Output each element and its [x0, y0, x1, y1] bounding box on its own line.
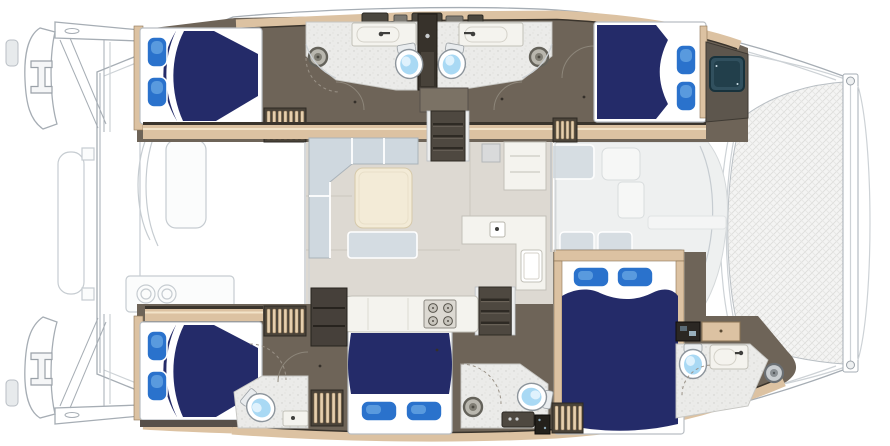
- faucet-right: [464, 32, 473, 34]
- counter-faucet: [495, 227, 499, 231]
- bow-fitting-top: [847, 77, 855, 85]
- electrical-panel: [535, 415, 550, 434]
- shower-drain: [464, 398, 482, 416]
- sink-counter-right: [459, 23, 523, 46]
- saloon-table: [355, 168, 412, 228]
- catamaran-floor-plan: [0, 0, 890, 446]
- pillow: [617, 267, 653, 287]
- cockpit-table: [166, 140, 206, 228]
- rail-bracket-top: [82, 148, 94, 160]
- pillow: [147, 37, 167, 67]
- galley-cabinet: [311, 288, 347, 346]
- chaise-seat: [348, 232, 417, 258]
- faucet: [735, 352, 743, 354]
- pillow: [147, 331, 167, 361]
- refrigerator: [504, 142, 546, 190]
- wet-bar-sink-left: [137, 285, 155, 303]
- pillow: [676, 45, 696, 75]
- sink-counter-left: [352, 23, 416, 46]
- starboard-companionway-stairs: [475, 287, 515, 335]
- port-inboard-shelf: [143, 122, 706, 139]
- floor-plan-svg: [0, 0, 890, 446]
- starboard-mid-steps: [311, 390, 343, 426]
- pillow: [573, 267, 609, 287]
- vanity: [283, 411, 308, 426]
- forward-seat-2: [602, 148, 640, 180]
- starboard-forward-steps: [552, 403, 583, 433]
- locker-panel: [421, 52, 434, 86]
- forward-step: [648, 216, 726, 229]
- bow-fitting-bottom: [847, 361, 855, 369]
- port-forward-steps: [553, 118, 577, 142]
- port-companionway-stairs: [427, 111, 469, 161]
- pillow: [147, 371, 167, 401]
- davit-tip-top: [6, 40, 18, 66]
- anchor-bridle: [858, 86, 870, 360]
- locker-knob: [425, 34, 429, 38]
- bed-headboard: [554, 250, 684, 261]
- port-heads: [306, 14, 552, 90]
- stove: [424, 300, 456, 328]
- starboard-mid-cabin: [348, 330, 452, 434]
- port-forward-cabin: [594, 22, 707, 122]
- pillow: [361, 401, 397, 421]
- forward-seat-3: [618, 182, 644, 218]
- wet-bar-sink-right: [158, 285, 176, 303]
- port-bow-locker: [706, 42, 748, 122]
- hatch-seat: [482, 144, 500, 162]
- pillow: [676, 81, 696, 111]
- pillow: [406, 401, 442, 421]
- bed-duvet: [348, 333, 452, 394]
- faucet: [291, 416, 295, 420]
- electrical-panel: [676, 322, 700, 341]
- shower-drain-port-forward: [530, 48, 548, 66]
- port-aft-cabin: [134, 26, 262, 130]
- stair-landing: [420, 88, 468, 112]
- bed-duvet: [597, 25, 668, 119]
- davit-tip-bottom: [6, 380, 18, 406]
- starboard-aft-steps: [264, 306, 306, 336]
- faucet-left: [381, 32, 390, 34]
- pillow: [147, 77, 167, 107]
- davit-rail: [58, 152, 84, 294]
- rail-bracket-bottom: [82, 288, 94, 300]
